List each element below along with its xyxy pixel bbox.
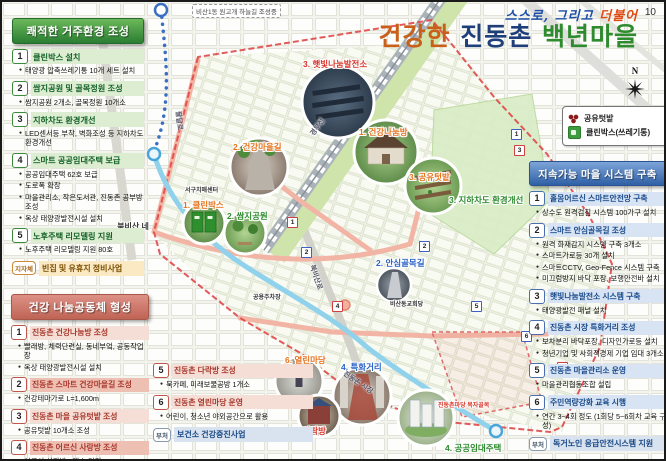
item-number: 3 [11, 409, 27, 424]
bullet-text: 청년기업 및 사회적경제 기업 임대 3개소 [542, 349, 664, 359]
section-items: 1진동촌 건강나눔방 조성●빨래방, 체력단련실, 동네부엌, 공동작업장●옥상… [11, 325, 149, 461]
bullet-text: 스마트CCTV, Geo-Fence 시스템 구축 [542, 263, 660, 273]
item-number: 3 [12, 112, 28, 127]
item-number: 5 [153, 363, 169, 378]
bullet-text: 옥상 태양광발전시설 설치 [25, 214, 103, 224]
bullet-text: 공유텃밭 10개소 조성 [24, 426, 90, 436]
item-bullet: ●옥상 태양광발전시설 설치 [18, 363, 149, 373]
legend-label: 클린박스(쓰레기통) [586, 127, 650, 138]
item-bullet: ●공유텃밭 10개소 조성 [18, 426, 149, 436]
bullet-icon: ● [536, 240, 539, 250]
bullet-icon: ● [536, 337, 539, 347]
item-bullet: ●태양광발전 패널 설치 [536, 306, 666, 316]
item-bullet: ●마을관리협동조합 설립 [536, 380, 666, 390]
agency-label: 빈집 및 유휴지 정비사업 [39, 261, 144, 276]
item-title: 지하차도 환경개선 [31, 112, 144, 127]
route-node [490, 425, 502, 437]
section-items: 5진동촌 다락방 조성●북카페, 미래보물공방 1개소6진동촌 열린마당 운영●… [153, 363, 313, 442]
photo-solar-plant [302, 66, 374, 138]
bullet-text: 도로폭 확장 [25, 181, 61, 191]
compass: N [620, 66, 650, 107]
legend-item: 클린박스(쓰레기통) [568, 126, 666, 139]
bullet-text: LED센서등 부착, 벽화조성 등 지하차도 환경개선 [25, 129, 144, 148]
photo-pocket-park [224, 212, 266, 254]
bullet-icon: ● [536, 349, 539, 359]
agency-label: 보건소 건강증진사업 [174, 427, 313, 442]
item-bullet: ●빨래방, 체력단련실, 동네부엌, 공동작업장 [18, 342, 149, 361]
item-bullet: ●스마트가로등 30개 설치 [536, 251, 666, 261]
item-title: 진동촌 건강나눔방 조성 [30, 326, 149, 340]
bullet-text: 어르신 사랑방 1개소 건립 [24, 457, 101, 461]
item-title: 진동촌 마을관리소 운영 [548, 364, 666, 378]
item-title: 햇빛나눔발전소 시스템 구축 [548, 289, 666, 303]
bullet-text: 북카페, 미래보물공방 1개소 [166, 380, 250, 390]
plan-item: 1홀몸어르신 스마트안전망 구축●상수도 원격검침 시스템 100가구 설치 [529, 191, 666, 218]
bullet-text: 옥상 태양광발전시설 설치 [24, 363, 102, 373]
bullet-icon: ● [160, 380, 163, 390]
section-items: 1클린박스 설치●태양광 압축쓰레기통 10개 세트 설치2쌈지공원 및 골목정… [12, 49, 144, 276]
item-bullet: ●어린이, 청소년 야외공간으로 활용 [160, 412, 313, 422]
agency-tag: 지자체 [12, 261, 36, 275]
item-number: 3 [529, 289, 545, 304]
bullet-icon: ● [536, 251, 539, 261]
route-node [155, 4, 167, 16]
section-header: 쾌적한 거주환경 조성 [12, 18, 144, 44]
plan-item: 6주민역량강화 교육 시행●연간 3~4회 정도 (1회당 5~6회차 교육 구… [529, 395, 666, 431]
item-title: 진동촌 어르신 사랑방 조성 [30, 441, 149, 455]
bullet-text: 노후주택 리모델링 지원 80호 [25, 245, 113, 255]
bullet-icon: ● [536, 208, 539, 218]
photo-clean-box [183, 202, 225, 244]
agency-support-item: 부처독거노인 응급안전시스템 지원 [529, 436, 666, 451]
item-title: 홀몸어르신 스마트안전망 구축 [548, 192, 666, 206]
item-bullet: ●청년기업 및 사회적경제 기업 임대 3개소 [536, 349, 666, 359]
bullet-text: 연간 3~4회 정도 (1회당 5~6회차 교육 구성) [542, 412, 666, 431]
item-number: 6 [529, 395, 545, 410]
route-node [148, 148, 160, 160]
bullet-icon: ● [19, 193, 22, 212]
photo-public-housing [398, 390, 454, 446]
plan-item: 3햇빛나눔발전소 시스템 구축●태양광발전 패널 설치 [529, 289, 666, 316]
plan-item: 4스마트 공공임대주택 보급●공공임대주택 62호 보급●도로폭 확장●마을관리… [12, 153, 144, 223]
plan-item: 5진동촌 마을관리소 운영●마을관리협동조합 설립 [529, 363, 666, 390]
bullet-text: 어린이, 청소년 야외공간으로 활용 [166, 412, 268, 422]
item-number: 6 [153, 395, 169, 410]
item-title: 진동촌 열린마당 운영 [172, 395, 313, 409]
bullet-icon: ● [19, 66, 22, 76]
legend-item: 공유텃밭 [568, 113, 666, 124]
item-number: 2 [529, 223, 545, 238]
item-bullet: ●미끄럼방지 바닥 포장, 보행안전바 설치 [536, 274, 666, 284]
bullet-text: 보차분리 바닥포장, 디자인가로등 설치 [542, 337, 658, 347]
construction-note-label: 비산1동 원고개 하늘길 조성중 [192, 4, 281, 18]
section-items: 1홀몸어르신 스마트안전망 구축●상수도 원격검침 시스템 100가구 설치2스… [529, 191, 666, 451]
item-title: 진동촌 마을 공유텃밭 조성 [30, 409, 149, 423]
plan-item: 2쌈지공원 및 골목정원 조성●쌈지공원 2개소, 골목정원 10개소 [12, 81, 144, 108]
bullet-text: 스마트가로등 30개 설치 [542, 251, 615, 261]
photo-healthy-road [230, 137, 288, 196]
agency-support-item: 지자체빈집 및 유휴지 정비사업 [12, 261, 144, 276]
section-health-community: 건강 나눔공동체 형성 1진동촌 건강나눔방 조성●빨래방, 체력단련실, 동네… [11, 294, 149, 461]
bullet-text: 빨래방, 체력단련실, 동네부엌, 공동작업장 [24, 342, 149, 361]
bullet-text: 건강테마가로 L=1,600m [24, 394, 99, 404]
bullet-icon: ● [19, 98, 22, 108]
clean-box-icon [568, 126, 581, 139]
title-main: 건강한 진동촌 백년마을 [379, 24, 638, 50]
bullet-icon: ● [18, 363, 21, 373]
bullet-icon: ● [536, 263, 539, 273]
bullet-icon: ● [19, 214, 22, 224]
item-title: 노후주택 리모델링 지원 [31, 228, 144, 243]
bullet-icon: ● [19, 129, 22, 148]
plan-item: 1클린박스 설치●태양광 압축쓰레기통 10개 세트 설치 [12, 49, 144, 76]
road-node [340, 300, 350, 310]
bullet-icon: ● [18, 394, 21, 404]
item-number: 4 [529, 320, 545, 335]
bullet-icon: ● [19, 181, 22, 191]
item-bullet: ●도로폭 확장 [19, 181, 144, 191]
plan-item: 3진동촌 마을 공유텃밭 조성●공유텃밭 10개소 조성 [11, 409, 149, 436]
item-number: 1 [11, 325, 27, 340]
village-masterplan-poster: 비산1동 원고개 하늘길 조성중 3. 햇빛나눔발전소2. 건강마을길1. 건강… [0, 0, 666, 461]
bullet-text: 공공임대주택 62호 보급 [25, 170, 98, 180]
item-number: 4 [11, 440, 27, 455]
item-bullet: ●어르신 사랑방 1개소 건립 [18, 457, 149, 461]
item-title: 진동촌 스마트 건강마을길 조성 [30, 378, 149, 392]
item-bullet: ●노후주택 리모델링 지원 80호 [19, 245, 144, 255]
item-bullet: ●태양광 압축쓰레기통 10개 세트 설치 [19, 66, 144, 76]
item-title: 진동촌 다락방 조성 [172, 364, 313, 378]
plan-item: 4진동촌 시장 특화거리 조성●보차분리 바닥포장, 디자인가로등 설치●청년기… [529, 320, 666, 358]
bullet-text: 태양광 압축쓰레기통 10개 세트 설치 [25, 66, 135, 76]
item-bullet: ●LED센서등 부착, 벽화조성 등 지하차도 환경개선 [19, 129, 144, 148]
bullet-icon: ● [536, 412, 539, 431]
item-bullet: ●공공임대주택 62호 보급 [19, 170, 144, 180]
plan-item: 3지하차도 환경개선●LED센서등 부착, 벽화조성 등 지하차도 환경개선 [12, 112, 144, 148]
bullet-icon: ● [19, 245, 22, 255]
plan-item: 5진동촌 다락방 조성●북카페, 미래보물공방 1개소 [153, 363, 313, 390]
item-bullet: ●보차분리 바닥포장, 디자인가로등 설치 [536, 337, 666, 347]
item-bullet: ●상수도 원격검침 시스템 100가구 설치 [536, 208, 666, 218]
bullet-text: 쌈지공원 2개소, 골목정원 10개소 [25, 98, 126, 108]
section-health-community-cont: 5진동촌 다락방 조성●북카페, 미래보물공방 1개소6진동촌 열린마당 운영●… [153, 358, 313, 442]
bullet-text: 마을관리협동조합 설립 [542, 380, 611, 390]
plan-item: 1진동촌 건강나눔방 조성●빨래방, 체력단련실, 동네부엌, 공동작업장●옥상… [11, 325, 149, 372]
plan-item: 6진동촌 열린마당 운영●어린이, 청소년 야외공간으로 활용 [153, 395, 313, 422]
item-title: 쌈지공원 및 골목정원 조성 [31, 81, 144, 96]
plan-item: 2진동촌 스마트 건강마을길 조성●건강테마가로 L=1,600m [11, 377, 149, 404]
plan-item: 2스마트 안심골목길 조성●원격 화재감지 시스템 구축 3개소●스마트가로등 … [529, 223, 666, 284]
page-number: 10 [645, 7, 656, 18]
legend-label: 공유텃밭 [584, 113, 613, 124]
item-title: 클린박스 설치 [31, 49, 144, 64]
section-header: 지속가능 마을 시스템 구축 [529, 161, 666, 186]
bullet-icon: ● [536, 274, 539, 284]
north-label: N [620, 66, 650, 76]
item-bullet: ●건강테마가로 L=1,600m [18, 394, 149, 404]
bullet-icon: ● [160, 412, 163, 422]
item-number: 4 [12, 153, 28, 168]
agency-tag: 부처 [153, 428, 171, 442]
bullet-text: 태양광발전 패널 설치 [542, 306, 606, 316]
section-header: 건강 나눔공동체 형성 [11, 294, 149, 320]
bullet-icon: ● [536, 306, 539, 316]
compass-star-icon [620, 76, 650, 102]
plan-item: 5노후주택 리모델링 지원●노후주택 리모델링 지원 80호 [12, 228, 144, 255]
item-title: 주민역량강화 교육 시행 [548, 395, 666, 409]
item-bullet: ●원격 화재감지 시스템 구축 3개소 [536, 240, 666, 250]
item-number: 1 [529, 191, 545, 206]
plan-item: 4진동촌 어르신 사랑방 조성●어르신 사랑방 1개소 건립 [11, 440, 149, 461]
item-bullet: ●옥상 태양광발전시설 설치 [19, 214, 144, 224]
item-bullet: ●북카페, 미래보물공방 1개소 [160, 380, 313, 390]
bullet-icon: ● [18, 457, 21, 461]
agency-tag: 부처 [529, 437, 547, 451]
poster-title: 스스로, 그리고 더불어 건강한 진동촌 백년마을 [379, 5, 638, 50]
agency-support-item: 부처보건소 건강증진사업 [153, 427, 313, 442]
bullet-icon: ● [536, 380, 539, 390]
photo-shared-garden [405, 158, 461, 214]
map-legend: 공유텃밭클린박스(쓰레기통) [562, 106, 666, 146]
section-sustainable-system: 지속가능 마을 시스템 구축 1홀몸어르신 스마트안전망 구축●상수도 원격검침… [529, 161, 666, 451]
section-pleasant-living: 쾌적한 거주환경 조성 1클린박스 설치●태양광 압축쓰레기통 10개 세트 설… [12, 18, 144, 276]
photo-special-street [333, 367, 391, 425]
shared-garden-icon [568, 113, 579, 124]
item-number: 1 [12, 49, 28, 64]
item-bullet: ●연간 3~4회 정도 (1회당 5~6회차 교육 구성) [536, 412, 666, 431]
bullet-text: 마을관리소, 작은도서관, 진동촌 공부방 조성 [25, 193, 144, 212]
item-title: 스마트 공공임대주택 보급 [31, 153, 144, 168]
item-title: 진동촌 시장 특화거리 조성 [548, 321, 666, 335]
bullet-text: 원격 화재감지 시스템 구축 3개소 [542, 240, 641, 250]
item-bullet: ●스마트CCTV, Geo-Fence 시스템 구축 [536, 263, 666, 273]
item-number: 2 [11, 377, 27, 392]
agency-label: 독거노인 응급안전시스템 지원 [550, 436, 666, 451]
bullet-icon: ● [18, 426, 21, 436]
item-title: 스마트 안심골목길 조성 [548, 223, 666, 237]
item-number: 5 [12, 228, 28, 243]
item-number: 2 [12, 81, 28, 96]
bullet-icon: ● [18, 342, 21, 361]
item-bullet: ●마을관리소, 작은도서관, 진동촌 공부방 조성 [19, 193, 144, 212]
item-bullet: ●쌈지공원 2개소, 골목정원 10개소 [19, 98, 144, 108]
photo-safe-alley [377, 268, 411, 302]
bullet-icon: ● [19, 170, 22, 180]
item-number: 5 [529, 363, 545, 378]
bullet-text: 상수도 원격검침 시스템 100가구 설치 [542, 208, 656, 218]
bullet-text: 미끄럼방지 바닥 포장, 보행안전바 설치 [542, 274, 660, 284]
